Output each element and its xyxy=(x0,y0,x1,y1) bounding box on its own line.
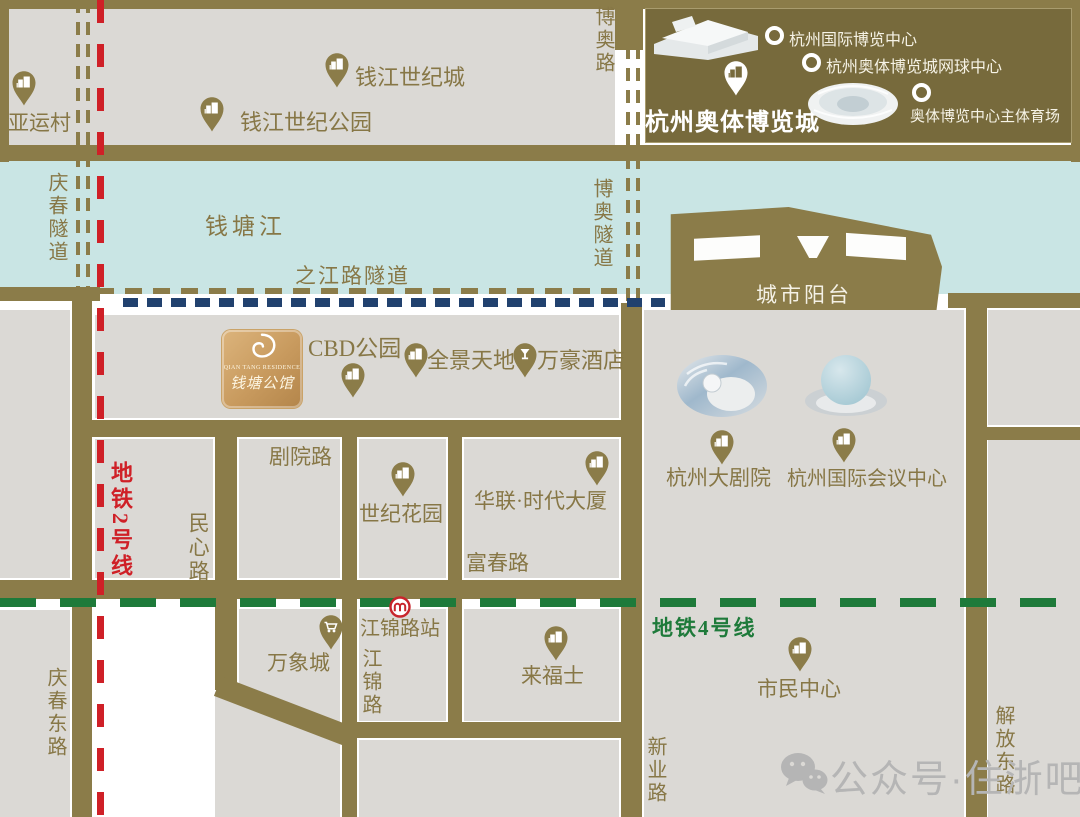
raffles-label: 来福士 xyxy=(521,665,584,688)
qingchun-tunnel-dash-1 xyxy=(76,0,80,294)
cbd-park-label: CBD公园 xyxy=(308,336,401,361)
expo-building-icon xyxy=(650,10,762,62)
fuchun-road-label: 富春路 xyxy=(466,552,529,575)
block-south-mid xyxy=(359,740,619,817)
marriott-label: 万豪酒店 xyxy=(537,349,625,373)
project-name-cn: 钱塘公馆 xyxy=(230,372,294,393)
legend-box: 杭州国际博览中心 杭州奥体博览城网球中心 杭州奥体博览城 奥体博览中心主体育场 xyxy=(645,8,1072,143)
mixc-label: 万象城 xyxy=(267,652,330,675)
mixc-pin-icon xyxy=(318,614,344,650)
road-right-edge xyxy=(1071,0,1080,162)
brand-swirl-icon xyxy=(245,330,279,364)
metro-line4-label: 地铁4号线 xyxy=(652,612,757,642)
panorama-label: 全景天地 xyxy=(427,349,515,373)
century-city-label: 钱江世纪城 xyxy=(355,66,465,90)
qingchundong-road-label: 庆春东路 xyxy=(44,667,66,759)
block-west-upper xyxy=(0,310,70,578)
block-east-upper xyxy=(988,310,1080,425)
raffles-pin-icon xyxy=(543,625,569,661)
balcony-window-left xyxy=(694,235,760,260)
road-qingchundong xyxy=(72,293,92,817)
panorama-pin-icon xyxy=(403,342,429,378)
road-east-stub xyxy=(986,427,1080,440)
cbd-park-pin-icon xyxy=(340,362,366,398)
road-mid-vertical xyxy=(448,437,462,737)
minxin-road-label: 民心路 xyxy=(186,512,209,584)
tennis-center-ring-icon xyxy=(802,53,821,72)
boao-tunnel-dash-2 xyxy=(636,46,640,302)
grand-theatre-label: 杭州大剧院 xyxy=(666,467,771,490)
road-juyuan xyxy=(72,420,642,437)
hualian-label: 华联·时代大厦 xyxy=(474,490,607,513)
century-city-pin-icon xyxy=(324,52,350,88)
juyuan-road-label: 剧院路 xyxy=(269,446,332,469)
road-boao-stub xyxy=(615,0,643,50)
xinye-road-label: 新业路 xyxy=(644,736,666,805)
qingchun-tunnel-label: 庆春隧道 xyxy=(45,172,67,264)
riverbank-dotted-line xyxy=(123,298,665,307)
jiangjin-station-label: 江锦路站 xyxy=(360,618,440,640)
legend-item-stadium: 奥体博览中心主体育场 xyxy=(910,105,1060,126)
hualian-pin-icon xyxy=(584,450,610,486)
balcony-window-right xyxy=(846,233,906,260)
road-minxin xyxy=(215,437,237,690)
road-jiefangdong xyxy=(966,300,987,817)
road-river-north xyxy=(0,145,1080,161)
watermark-text: 公众号·住浙吧 xyxy=(830,748,1080,803)
legend-item-tennis-center: 杭州奥体博览城网球中心 xyxy=(826,53,1002,77)
wechat-icon xyxy=(779,751,829,795)
boao-tunnel-label: 博奥隧道 xyxy=(590,178,612,270)
olympic-city-pin-icon xyxy=(723,60,749,96)
metro-line4 xyxy=(0,598,1080,607)
century-park-pin-icon xyxy=(199,96,225,132)
stadium-ring-icon xyxy=(912,83,931,102)
yayuncun-label: 亚运村 xyxy=(8,112,71,135)
century-garden-pin-icon xyxy=(390,461,416,497)
road-south-horizontal xyxy=(342,722,642,738)
legend-item-expo-center: 杭州国际博览中心 xyxy=(789,26,917,50)
zhijiang-tunnel-label: 之江路隧道 xyxy=(295,265,410,288)
marriott-pin-icon xyxy=(512,342,538,378)
yayuncun-pin-icon xyxy=(11,70,37,106)
road-xinye xyxy=(621,303,642,817)
river-label: 钱塘江 xyxy=(205,214,286,239)
project-logo-box: QIAN TANG RESIDENCE 钱塘公馆 xyxy=(222,330,302,408)
zhijiang-tunnel-dash xyxy=(97,288,617,294)
century-park-label: 钱江世纪公园 xyxy=(240,111,372,135)
metro-line2-label: 地铁2号线 xyxy=(104,461,136,580)
qingchun-tunnel-dash-2 xyxy=(86,0,90,294)
location-map: 城市阳台 杭州国际博览中心 杭州奥体博览城网球中心 杭州奥体博览城 奥体博览中心… xyxy=(0,0,1080,817)
road-left-edge xyxy=(0,0,9,162)
city-balcony-label: 城市阳台 xyxy=(756,279,852,309)
century-garden-label: 世纪花园 xyxy=(359,503,443,526)
boao-tunnel-dash-1 xyxy=(626,46,630,302)
conference-center-illustration xyxy=(800,350,892,418)
conference-center-label: 杭州国际会议中心 xyxy=(787,468,947,490)
project-name-en: QIAN TANG RESIDENCE xyxy=(224,365,301,371)
civic-center-label: 市民中心 xyxy=(757,678,841,701)
balcony-notch xyxy=(797,236,829,258)
road-jiangjin xyxy=(342,437,357,817)
expo-center-ring-icon xyxy=(765,26,784,45)
jiangjin-road-label: 江锦路 xyxy=(359,648,381,717)
grand-theatre-illustration xyxy=(675,352,770,420)
metro-line2 xyxy=(97,0,104,817)
civic-center-pin-icon xyxy=(787,636,813,672)
grand-theatre-pin-icon xyxy=(709,429,735,465)
boao-road-label: 博奥路 xyxy=(592,6,614,75)
conference-center-pin-icon xyxy=(831,427,857,463)
legend-title: 杭州奥体博览城 xyxy=(645,102,820,137)
stadium-icon xyxy=(806,80,901,128)
metro-station-icon xyxy=(389,596,411,618)
